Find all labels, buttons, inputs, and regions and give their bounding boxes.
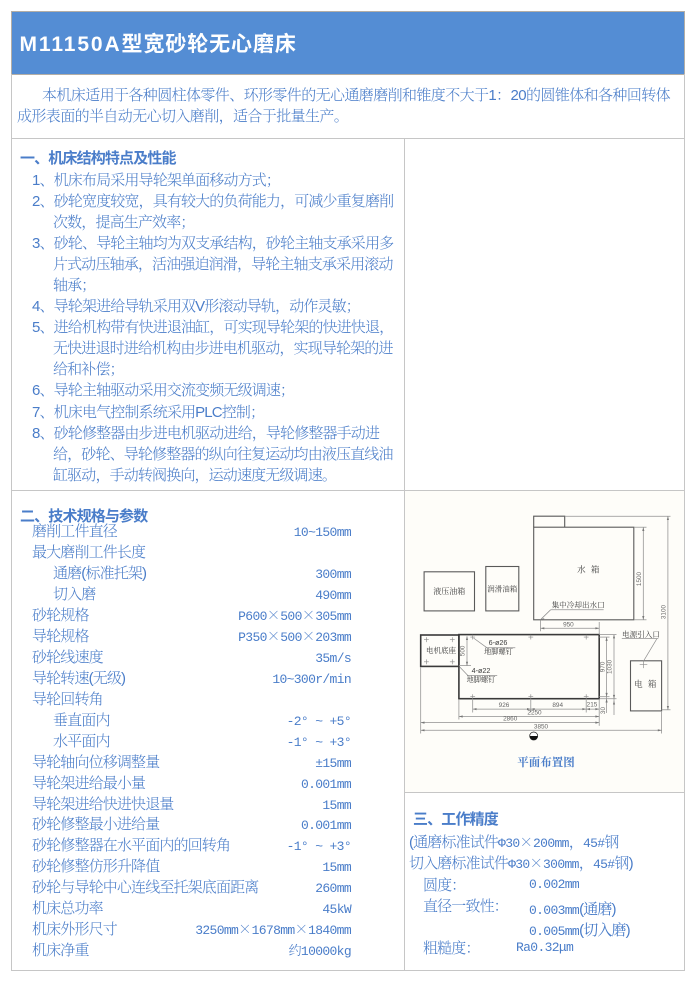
svg-text:30: 30 — [600, 707, 607, 715]
svg-text:2860: 2860 — [503, 716, 518, 723]
svg-text:4-ø22: 4-ø22 — [472, 666, 491, 675]
svg-text:地脚螺钉: 地脚螺钉 — [467, 675, 496, 684]
svg-text:水 箱: 水 箱 — [577, 565, 601, 575]
svg-text:3850: 3850 — [534, 723, 549, 730]
svg-text:电 箱: 电 箱 — [634, 679, 658, 689]
svg-text:926: 926 — [499, 702, 510, 709]
svg-text:液压油箱: 液压油箱 — [433, 586, 465, 596]
svg-text:电源引入口: 电源引入口 — [622, 629, 660, 639]
svg-text:3100: 3100 — [660, 604, 667, 619]
svg-text:950: 950 — [563, 621, 574, 628]
svg-text:1500: 1500 — [636, 571, 643, 586]
svg-text:1030: 1030 — [607, 659, 614, 674]
svg-text:平面布置图: 平面布置图 — [517, 755, 575, 769]
svg-text:电机底座: 电机底座 — [426, 645, 456, 655]
svg-text:地脚螺钉: 地脚螺钉 — [484, 647, 513, 656]
svg-text:215: 215 — [587, 702, 598, 709]
svg-text:894: 894 — [552, 702, 563, 709]
svg-text:500: 500 — [459, 645, 466, 656]
svg-text:6-ø26: 6-ø26 — [489, 638, 508, 647]
svg-text:2250: 2250 — [527, 710, 542, 717]
svg-text:集中冷却出水口: 集中冷却出水口 — [552, 600, 605, 610]
svg-text:970: 970 — [599, 661, 606, 672]
svg-text:润滑油箱: 润滑油箱 — [487, 584, 517, 594]
